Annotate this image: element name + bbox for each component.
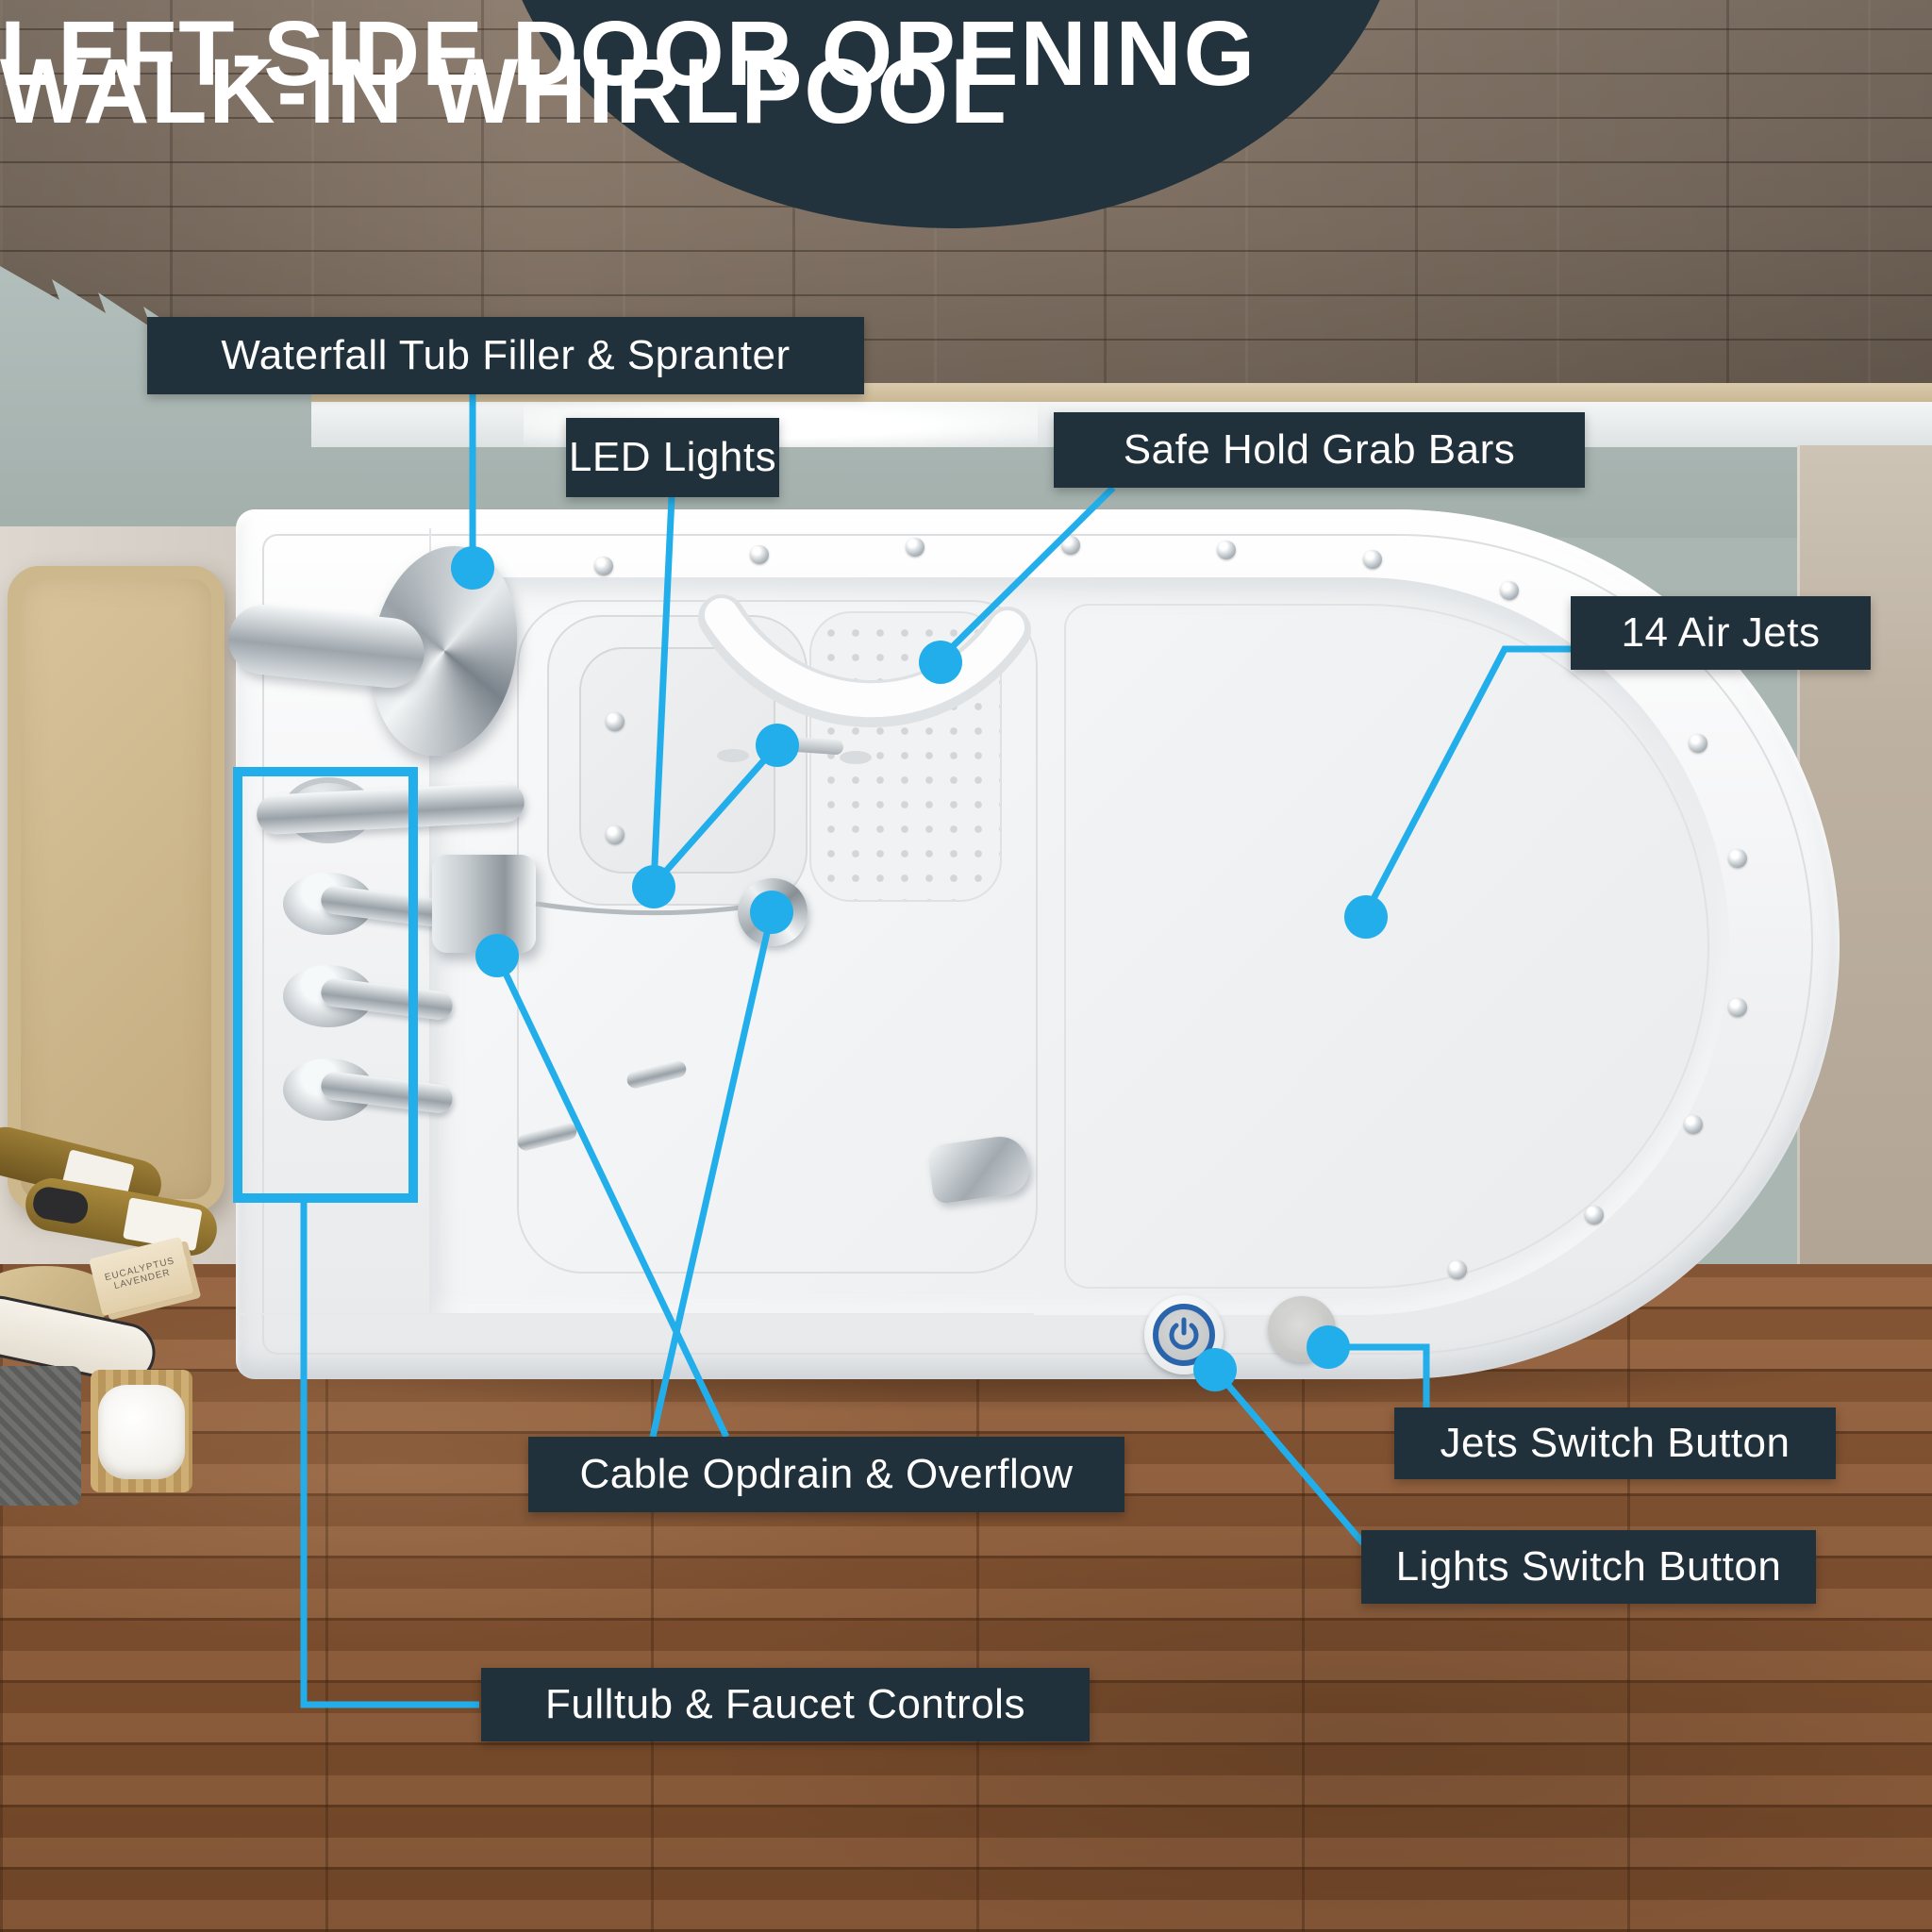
label-lights-switch: Lights Switch Button [1361, 1530, 1816, 1604]
drain-hole [756, 895, 790, 929]
air-jet [1061, 536, 1080, 555]
page-title-line2: LEFT-SIDE DOOR OPENING [0, 4, 1257, 105]
air-jet [1689, 734, 1707, 753]
air-jet [1684, 1115, 1703, 1134]
jets-switch-button [1268, 1296, 1336, 1362]
bottle-cap [31, 1185, 91, 1226]
air-jet [1363, 550, 1382, 569]
label-grab-bars: Safe Hold Grab Bars [1054, 412, 1585, 488]
jet-dimple [840, 751, 872, 764]
textured-seat [809, 611, 1002, 902]
label-waterfall-filler: Waterfall Tub Filler & Spranter [147, 317, 864, 394]
air-jet [1585, 1206, 1604, 1224]
air-jet [750, 545, 769, 564]
label-drain-overflow: Cable Opdrain & Overflow [528, 1437, 1124, 1512]
air-jet [906, 538, 924, 557]
toiletry-tray: EUCALYPTUS LAVENDER [8, 566, 225, 1212]
label-air-jets: 14 Air Jets [1571, 596, 1871, 670]
lights-switch-button [1144, 1295, 1224, 1374]
air-jet [1728, 849, 1747, 868]
air-jet [1500, 581, 1519, 600]
power-icon [1167, 1318, 1201, 1352]
soap-bar [98, 1385, 185, 1479]
air-jet [594, 557, 613, 575]
label-faucet-controls: Fulltub & Faucet Controls [481, 1668, 1090, 1741]
door-seam [236, 1313, 1034, 1315]
gray-towel [0, 1366, 81, 1506]
air-jet [1217, 541, 1236, 559]
air-jet [606, 825, 625, 844]
overflow-knob [432, 855, 536, 953]
label-jets-switch: Jets Switch Button [1394, 1407, 1836, 1479]
jet-dimple [717, 749, 749, 762]
air-jet [1448, 1260, 1467, 1279]
infographic-stage: WALK-IN WHIRLPOOL LEFT-SIDE DOOR OPENING… [0, 0, 1932, 1932]
jets-button-face [1279, 1307, 1324, 1352]
air-jet [1728, 998, 1747, 1017]
air-jet [606, 712, 625, 731]
label-led-lights: LED Lights [566, 418, 779, 497]
